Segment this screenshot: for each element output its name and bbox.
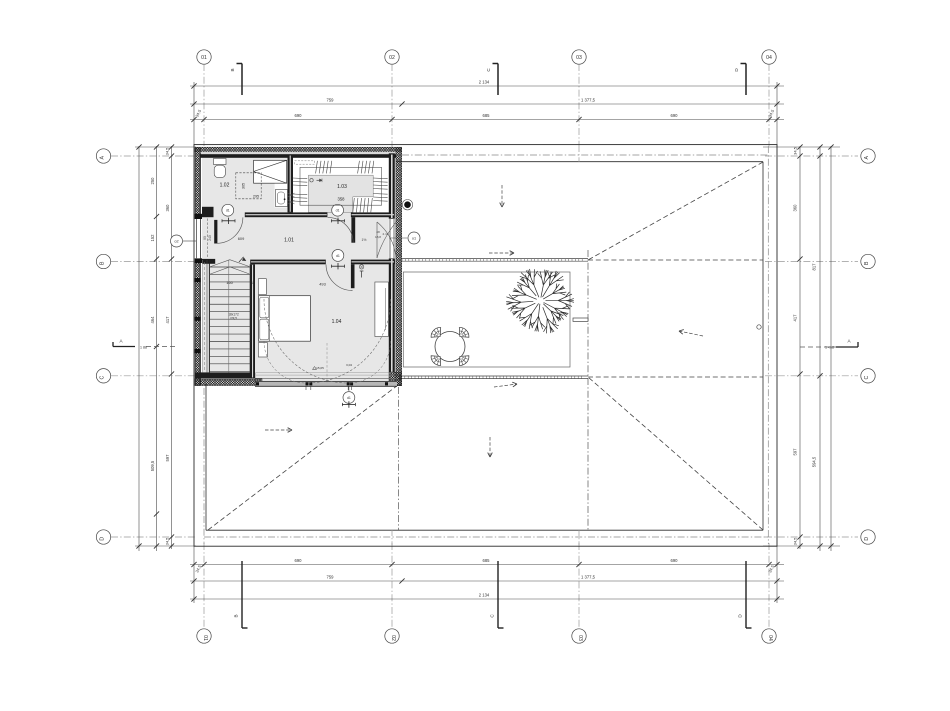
svg-text:609: 609	[238, 236, 245, 241]
svg-text:15,05: 15,05	[316, 366, 324, 370]
svg-text:1 468: 1 468	[825, 346, 834, 350]
svg-text:759: 759	[327, 575, 335, 580]
svg-text:690: 690	[671, 558, 679, 563]
svg-text:250: 250	[150, 177, 155, 185]
svg-text:464: 464	[150, 316, 155, 324]
svg-text:C: C	[864, 375, 870, 379]
svg-text:417: 417	[165, 316, 170, 324]
svg-text:C: C	[100, 375, 106, 379]
svg-text:417: 417	[793, 314, 798, 322]
svg-text:240: 240	[208, 235, 212, 241]
svg-text:759: 759	[327, 98, 335, 103]
svg-text:03: 03	[577, 635, 583, 641]
svg-text:34,5: 34,5	[793, 537, 798, 546]
svg-text:1.01: 1.01	[284, 238, 294, 244]
svg-text:690: 690	[295, 113, 303, 118]
svg-text:817: 817	[812, 263, 817, 271]
svg-text:597: 597	[793, 448, 798, 456]
svg-text:1.03: 1.03	[337, 184, 347, 190]
svg-text:A: A	[864, 156, 870, 160]
svg-text:12: 12	[251, 281, 255, 285]
svg-text:3,04: 3,04	[346, 363, 352, 367]
svg-text:o2: o2	[174, 240, 178, 244]
svg-text:1 377,5: 1 377,5	[581, 98, 596, 103]
svg-text:04: 04	[767, 635, 773, 641]
svg-text:B: B	[100, 261, 106, 265]
svg-text:1%: 1%	[362, 238, 367, 242]
svg-text:d1: d1	[347, 396, 351, 400]
svg-text:90: 90	[203, 236, 207, 240]
svg-text:B: B	[864, 261, 870, 265]
svg-text:360: 360	[165, 204, 170, 212]
svg-text:509,5: 509,5	[150, 460, 155, 471]
svg-text:1 377,5: 1 377,5	[581, 575, 596, 580]
svg-text:D: D	[864, 537, 870, 541]
svg-text:152: 152	[150, 234, 155, 242]
svg-text:1.04: 1.04	[332, 319, 342, 325]
svg-text:34,5: 34,5	[165, 537, 170, 546]
svg-text:02: 02	[390, 635, 396, 641]
svg-text:690: 690	[295, 558, 303, 563]
svg-text:358: 358	[338, 197, 346, 202]
svg-text:360: 360	[793, 204, 798, 212]
svg-text:o1: o1	[412, 237, 416, 241]
svg-text:2.10: 2.10	[382, 232, 388, 236]
svg-text:01: 01	[202, 635, 208, 641]
svg-text:B: B	[234, 614, 239, 617]
svg-text:685: 685	[483, 558, 491, 563]
svg-text:d1: d1	[226, 209, 230, 213]
svg-text:48: 48	[376, 230, 380, 234]
svg-text:690: 690	[671, 113, 679, 118]
svg-text:d1: d1	[336, 209, 340, 213]
svg-text:01: 01	[201, 55, 207, 61]
svg-text:305: 305	[242, 183, 246, 189]
svg-text:685: 685	[483, 113, 491, 118]
svg-text:295: 295	[253, 195, 259, 199]
svg-text:34,5: 34,5	[165, 147, 170, 156]
svg-text:18,8: 18,8	[375, 235, 381, 239]
svg-text:1.02: 1.02	[220, 183, 230, 189]
svg-text:597: 597	[165, 454, 170, 462]
svg-text:04: 04	[766, 55, 772, 61]
svg-text:02: 02	[389, 55, 395, 61]
svg-text:03: 03	[576, 55, 582, 61]
svg-text:2 134: 2 134	[479, 80, 490, 85]
svg-text:D: D	[100, 537, 106, 541]
svg-text:493: 493	[319, 282, 326, 287]
svg-text:2 134: 2 134	[479, 593, 490, 598]
svg-text:160: 160	[226, 280, 233, 285]
svg-text:d1: d1	[336, 254, 340, 258]
svg-text:34,5: 34,5	[793, 146, 798, 155]
svg-text:A: A	[100, 156, 106, 160]
svg-text:B: B	[230, 68, 235, 71]
svg-text:594,5: 594,5	[812, 456, 817, 467]
svg-text:/28,5: /28,5	[230, 317, 237, 321]
svg-text:1 88: 1 88	[140, 346, 147, 350]
